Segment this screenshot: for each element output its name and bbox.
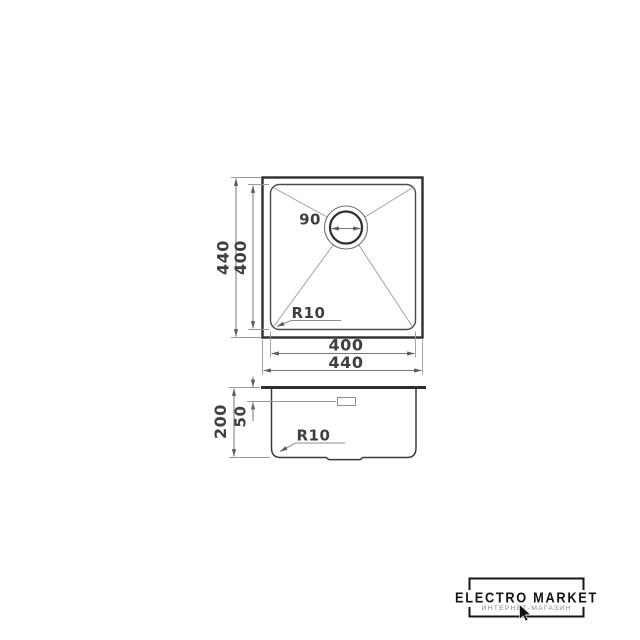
side-view-drawing: 200 50 R10: [211, 377, 426, 460]
overflow-depth-label: 50: [232, 406, 250, 428]
radius-leader-line: [277, 321, 291, 327]
logo-frame-top: [470, 579, 584, 591]
bowl-diagonal-line: [365, 188, 412, 217]
top-view-outer-rim: [263, 178, 423, 338]
outer-width-label: 440: [329, 353, 364, 372]
bowl-diagonal-line: [359, 245, 413, 327]
side-view-corner-radius-label: R10: [297, 427, 331, 445]
electro-market-logo: ELECTRO MARKET ИНТЕРНЕТ-МАГАЗИН: [455, 579, 598, 622]
drain-diameter-label: 90: [299, 211, 321, 229]
sink-technical-drawing: 90 R10 440 400 400 440: [0, 0, 640, 640]
top-view-drawing: 90 R10 440 400 400 440: [214, 178, 423, 375]
top-view-corner-radius-label: R10: [292, 304, 326, 322]
radius-leader-line: [280, 443, 296, 452]
inner-height-label: 400: [231, 240, 250, 275]
inner-width-label: 400: [329, 336, 364, 355]
total-height-label: 200: [211, 404, 230, 439]
overflow-opening: [338, 398, 356, 406]
outer-height-label: 440: [214, 240, 233, 275]
logo-title: ELECTRO MARKET: [455, 590, 598, 607]
side-view-bowl-profile: [272, 389, 417, 460]
drain-inner-circle: [330, 212, 362, 244]
product-drawing-page: 90 R10 440 400 400 440: [0, 0, 640, 640]
